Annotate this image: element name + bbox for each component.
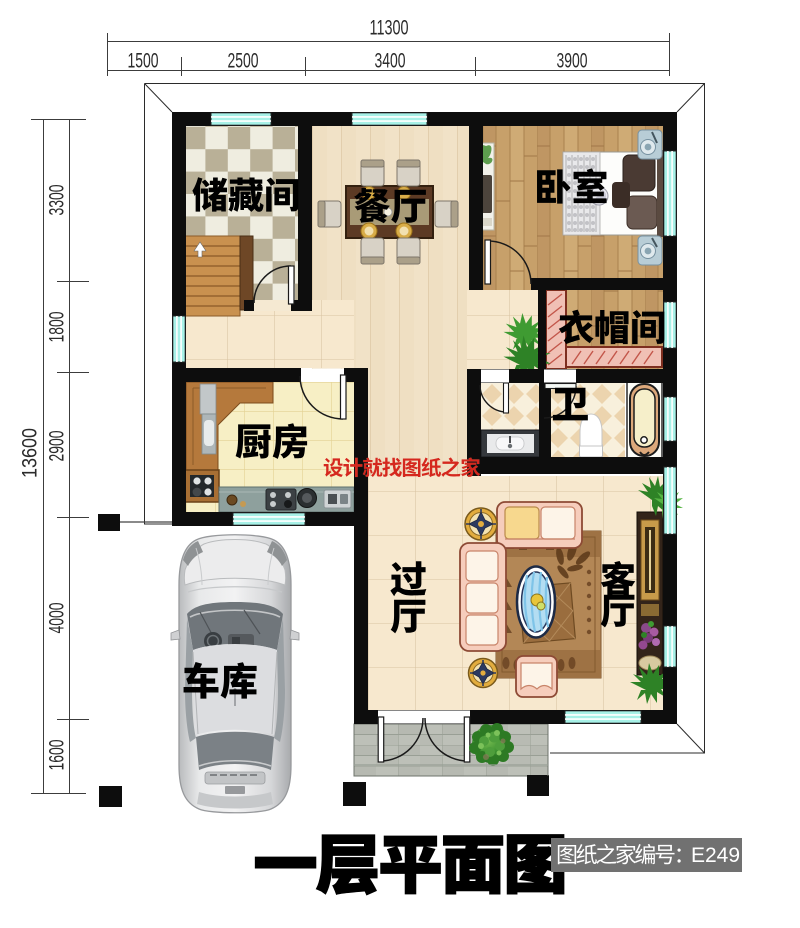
svg-text:13600: 13600 <box>19 428 42 478</box>
svg-text:3400: 3400 <box>375 50 406 73</box>
svg-text:1800: 1800 <box>46 312 69 343</box>
svg-text:2500: 2500 <box>228 50 259 73</box>
svg-text:11300: 11300 <box>370 17 409 40</box>
svg-text:E249: E249 <box>691 844 740 867</box>
svg-text:3300: 3300 <box>46 185 69 216</box>
svg-text:1600: 1600 <box>46 740 69 771</box>
svg-text:4000: 4000 <box>46 603 69 634</box>
svg-text:3900: 3900 <box>557 50 588 73</box>
svg-text:2900: 2900 <box>46 431 69 462</box>
svg-text:1500: 1500 <box>128 50 159 73</box>
